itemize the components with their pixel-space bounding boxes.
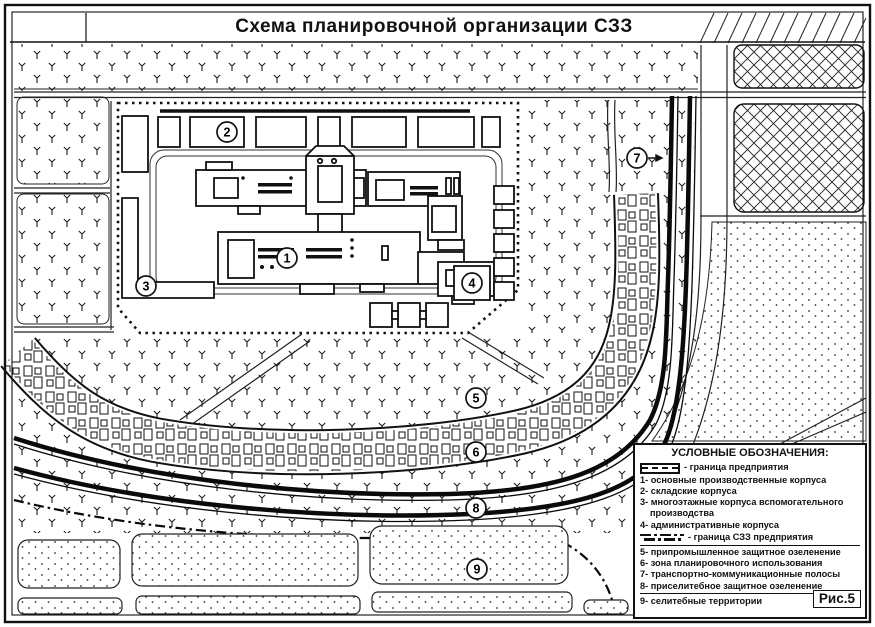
legend-item-9: 9- селитебные территории	[640, 596, 762, 606]
map-marker-3: 3	[136, 276, 156, 296]
enterprise-boundary-symbol	[640, 463, 680, 474]
factory-area	[118, 103, 518, 333]
map-marker-9: 9	[467, 559, 487, 579]
legend: УСЛОВНЫЕ ОБОЗНАЧЕНИЯ: - граница предприя…	[633, 443, 867, 619]
enterprise-boundary-label: - граница предприятия	[684, 462, 789, 473]
map-marker-6: 6	[466, 442, 486, 462]
svg-text:6: 6	[473, 446, 480, 460]
legend-item-2: 2- складские корпуса	[640, 486, 860, 497]
legend-title: УСЛОВНЫЕ ОБОЗНАЧЕНИЯ:	[640, 447, 860, 460]
map-marker-7: 7	[627, 148, 647, 168]
map-marker-5: 5	[466, 388, 486, 408]
svg-text:9: 9	[474, 563, 481, 577]
legend-item-5: 5- припромышленное защитное озеленение	[640, 547, 860, 558]
legend-item-6: 6- зона планировочного использования	[640, 558, 860, 569]
residential-blocks	[18, 526, 628, 614]
legend-item-4: 4- административные корпуса	[640, 520, 860, 531]
svg-text:3: 3	[143, 280, 150, 294]
figure-label: Рис.5	[813, 590, 861, 608]
map-marker-1: 1	[277, 248, 297, 268]
legend-row-9: 9- селитебные территории Рис.5	[640, 593, 860, 607]
legend-item-3: 3- многоэтажные корпуса вспомогательного…	[640, 497, 860, 519]
legend-item-7: 7- транспортно-коммуникационные полосы	[640, 569, 860, 580]
svg-text:7: 7	[634, 152, 641, 166]
page-title: Схема планировочной организации СЗЗ	[86, 12, 712, 42]
svg-text:2: 2	[224, 126, 231, 140]
legend-row-enterprise-boundary: - граница предприятия	[640, 461, 860, 474]
svg-text:5: 5	[473, 392, 480, 406]
legend-item-1: 1- основные производственные корпуса	[640, 475, 860, 486]
map-marker-2: 2	[217, 122, 237, 142]
corner-hatch	[700, 13, 866, 43]
crosshatch-blocks	[734, 45, 864, 212]
map-marker-4: 4	[462, 273, 482, 293]
szz-boundary-symbol	[640, 532, 684, 542]
svg-text:1: 1	[284, 252, 291, 266]
svg-text:8: 8	[473, 502, 480, 516]
map-marker-8: 8	[466, 498, 486, 518]
site-plan: 1 2 3 4 5 6 7 8	[0, 0, 875, 627]
svg-text:4: 4	[469, 277, 476, 291]
szz-boundary-label: - граница СЗЗ предприятия	[688, 532, 813, 543]
legend-row-szz-boundary: - граница СЗЗ предприятия	[640, 531, 860, 544]
legend-group-5-8: 5- припромышленное защитное озеленение 6…	[640, 545, 860, 592]
